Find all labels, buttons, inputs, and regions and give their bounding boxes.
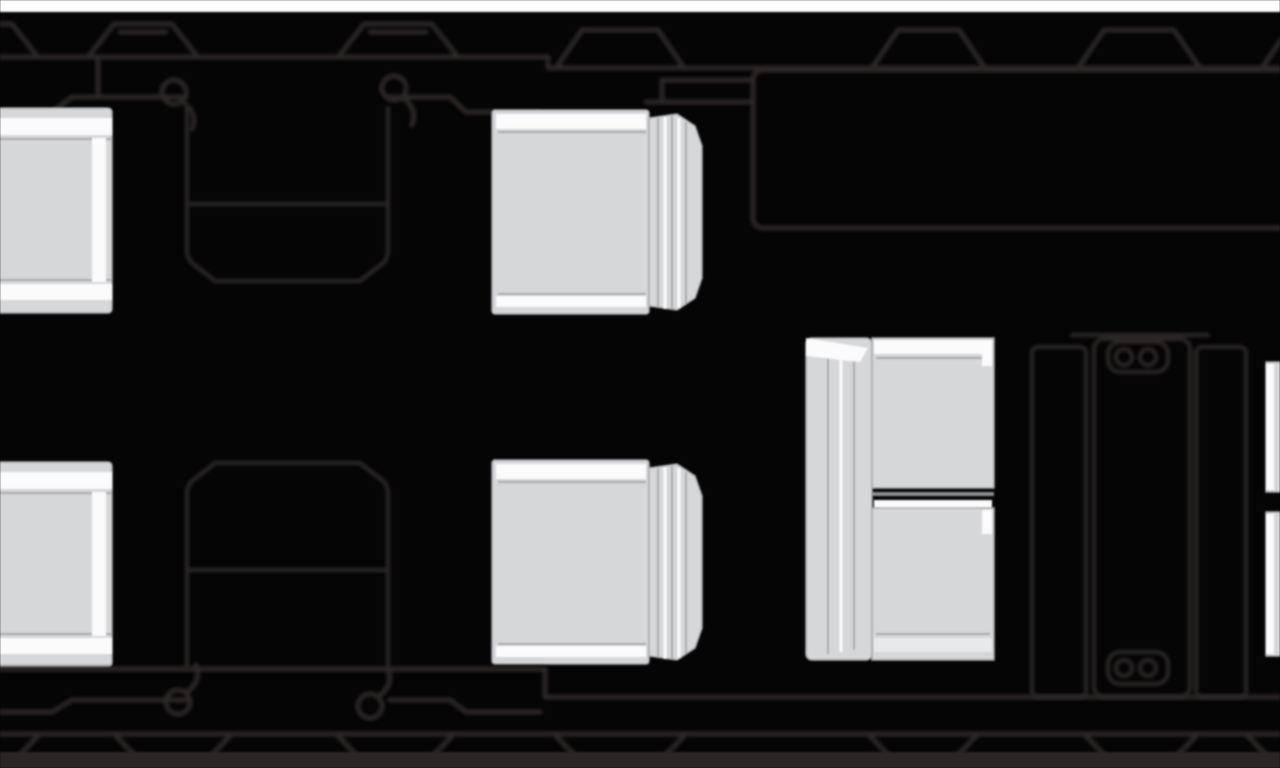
cabin-floorplan-image	[0, 0, 1280, 768]
seat-highlight	[0, 284, 112, 300]
divan-cushion	[872, 338, 994, 488]
seat-highlight	[874, 340, 992, 354]
seat-backrest	[649, 464, 702, 660]
backrest-highlight	[1266, 364, 1274, 490]
seat-cushion	[492, 460, 649, 664]
seat-edge-highlight	[982, 510, 992, 534]
seat-highlight	[0, 118, 112, 135]
cushion-soft-band	[874, 638, 992, 652]
passenger-seat-left-upper	[0, 108, 112, 313]
page-top-strip	[0, 0, 1280, 12]
seat-highlight	[496, 296, 646, 307]
backrest-highlight	[1266, 514, 1274, 654]
seat-highlight	[496, 464, 646, 479]
cabin-floorplan	[0, 0, 1280, 768]
club-seat-upper	[492, 110, 702, 314]
seat-cushion	[492, 110, 649, 314]
seat-highlight	[0, 472, 112, 489]
seat-edge-highlight	[982, 342, 992, 366]
seat-edge-highlight	[92, 138, 106, 282]
divan-backrest	[806, 338, 872, 660]
seat-highlight	[0, 638, 112, 654]
seat-backrest	[649, 114, 702, 310]
seat-highlight	[496, 114, 646, 129]
seat-edge-highlight	[92, 492, 106, 636]
image-bottom-strip	[0, 752, 1280, 768]
seat-highlight	[496, 646, 646, 657]
club-seat-lower	[492, 460, 702, 664]
divan-cushion	[872, 508, 994, 660]
passenger-seat-left-lower	[0, 462, 112, 667]
